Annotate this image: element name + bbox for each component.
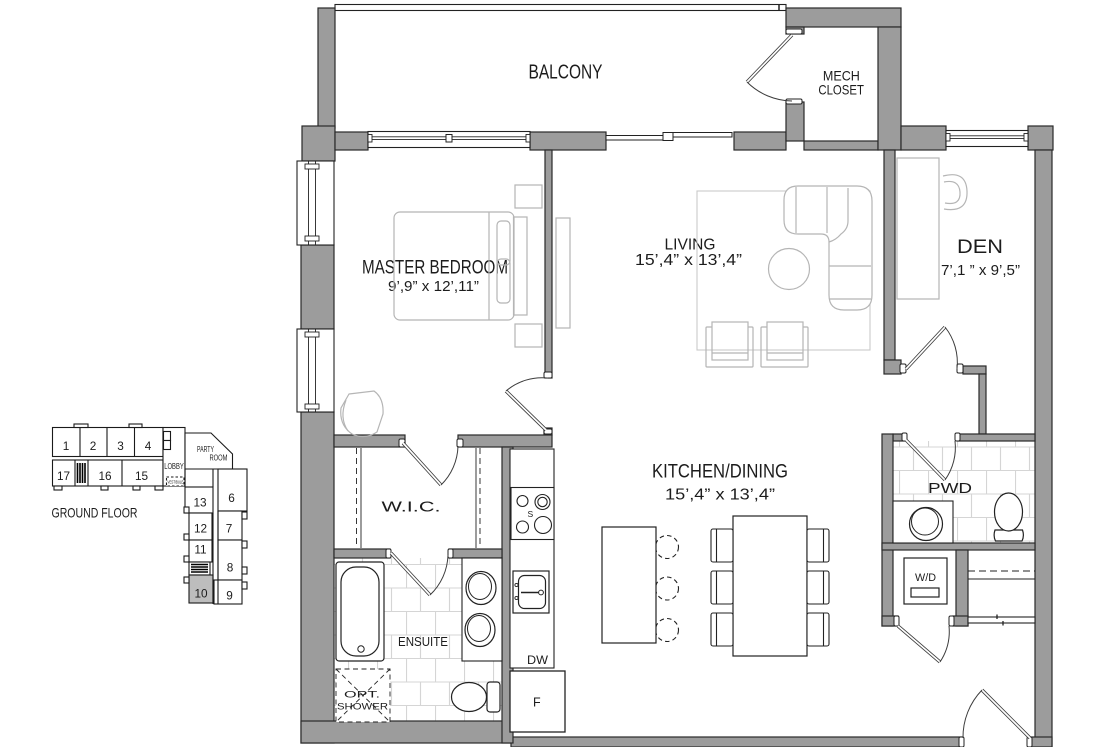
svg-text:9: 9 <box>226 589 233 603</box>
svg-text:OPT.: OPT. <box>344 690 380 701</box>
svg-text:15’,4” x 13’,4”: 15’,4” x 13’,4” <box>635 252 742 269</box>
svg-text:12: 12 <box>194 522 207 536</box>
svg-text:11: 11 <box>194 543 206 557</box>
svg-text:DW: DW <box>527 655 548 667</box>
svg-text:1: 1 <box>63 439 70 453</box>
svg-text:8: 8 <box>227 561 234 575</box>
svg-text:MASTER BEDROOM: MASTER BEDROOM <box>362 257 508 279</box>
svg-text:16: 16 <box>98 469 112 483</box>
svg-text:GROUND FLOOR: GROUND FLOOR <box>52 505 138 521</box>
svg-text:KITCHEN/DINING: KITCHEN/DINING <box>652 461 788 483</box>
svg-text:4: 4 <box>145 439 152 453</box>
svg-text:15’,4” x 13’,4”: 15’,4” x 13’,4” <box>665 487 775 504</box>
svg-text:6: 6 <box>228 491 235 505</box>
svg-text:LIVING: LIVING <box>665 237 716 254</box>
svg-text:10: 10 <box>194 587 208 601</box>
svg-text:13: 13 <box>193 496 207 510</box>
svg-text:3: 3 <box>117 439 124 453</box>
svg-text:S: S <box>528 509 534 519</box>
svg-text:PWD: PWD <box>928 480 972 497</box>
svg-text:F: F <box>533 696 541 710</box>
svg-text:DEN: DEN <box>957 237 1003 258</box>
svg-text:ROOM: ROOM <box>210 454 228 463</box>
svg-text:7: 7 <box>226 522 233 536</box>
svg-text:9’,9” x 12’,11”: 9’,9” x 12’,11” <box>388 278 479 295</box>
svg-text:CLOSET: CLOSET <box>818 81 864 97</box>
svg-text:15: 15 <box>135 469 149 483</box>
svg-text:W.I.C.: W.I.C. <box>382 500 441 516</box>
svg-text:SHOWER: SHOWER <box>337 702 388 713</box>
svg-text:7’,1 ” x 9’,5”: 7’,1 ” x 9’,5” <box>941 262 1020 279</box>
svg-text:2: 2 <box>90 439 97 453</box>
svg-text:LOBBY: LOBBY <box>164 461 184 471</box>
svg-text:VESTIBULE: VESTIBULE <box>168 480 184 485</box>
svg-text:W/D: W/D <box>915 572 936 584</box>
svg-text:ENSUITE: ENSUITE <box>398 635 448 649</box>
svg-text:17: 17 <box>57 469 70 483</box>
svg-text:BALCONY: BALCONY <box>529 62 603 84</box>
